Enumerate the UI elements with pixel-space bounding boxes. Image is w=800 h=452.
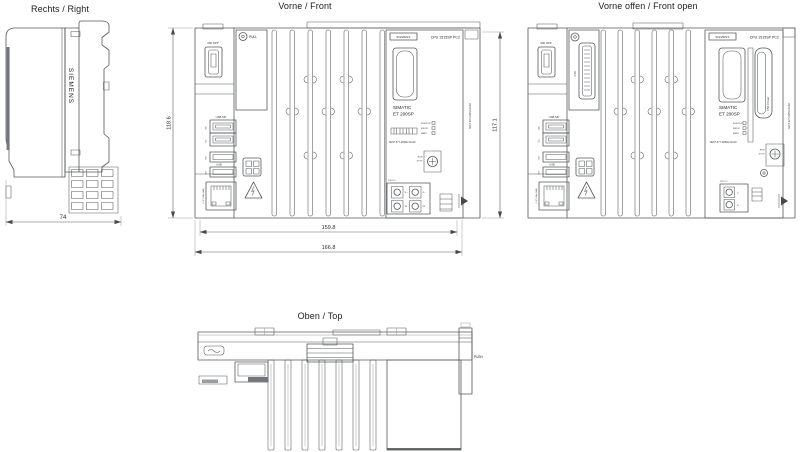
usb-port-x60-label: X60: [539, 125, 541, 129]
dimension-width-inner: 159.8: [200, 220, 457, 236]
center-connector-block: [307, 338, 353, 362]
cpu-type-label: CPU 1515SP PC2: [431, 36, 460, 40]
siemens-logo: SIEMENS: [390, 33, 417, 40]
led-error: ERROR: [421, 128, 428, 130]
dimension-height-right: 117.1: [482, 32, 504, 218]
push-label: PUSH: [474, 355, 484, 359]
open-compartment: X30: [569, 30, 599, 110]
front-plate-edge-shading: [7, 47, 10, 150]
article-number: 6ES7 677-2DB42-0GA0: [710, 141, 737, 144]
terminal-l: L+: [737, 193, 740, 195]
cooling-fins: [601, 30, 695, 216]
usb-port-x63-label: X63: [539, 170, 541, 174]
cpu-section-open: SIEMENS CPU 1515SP PC2 X50 CFast SIMATIC…: [705, 30, 791, 218]
front-view-drawing: X80 DPP PULL USB MP X60 X61 USB X62 X63: [160, 16, 505, 262]
x30-label: X30: [573, 71, 577, 77]
front-open-view-title: Vorne offen / Front open: [498, 1, 798, 11]
led-labels: RUN/STOP ERROR MAINT: [421, 122, 435, 136]
mode-stop-label: STOP: [759, 154, 765, 156]
siemens-logo: SIEMENS: [709, 33, 736, 40]
mode-switch-knob: RUN STOP: [759, 144, 784, 166]
usb-ports: USB MP X60 X61 USB X62 X63: [206, 115, 237, 177]
dimension-height-right-value: 117.1: [493, 118, 499, 131]
open-housing: [528, 23, 795, 218]
displayport-label: X80 DPP: [540, 41, 552, 45]
barcode: [391, 128, 417, 134]
busadapter-clip: [465, 30, 478, 39]
dimension-height-left-value: 118.6: [167, 116, 173, 129]
dimension-depth: 74: [6, 180, 121, 226]
siemens-logo-text: SIEMENS: [396, 35, 410, 39]
left-step-detail: [199, 362, 268, 384]
usb-port-x62-label: X62: [206, 155, 208, 159]
bottom-lug: [6, 186, 11, 198]
cpu-section: SIEMENS CPU 1515SP PC2 SIMATIC ET 200SP …: [386, 30, 478, 218]
dimension-depth-value: 74: [60, 215, 67, 221]
led-error: ERROR: [733, 128, 740, 130]
led-labels: RUN/STOP ERROR MAINT: [733, 122, 746, 136]
displayport-port: X80 DPP: [538, 41, 555, 77]
x30-connector: X30: [573, 43, 595, 99]
release-arrow-icon: [779, 194, 788, 208]
power-label: 24V DC: [388, 180, 396, 182]
usb-ports: USB MP X60 X61 USB X62 X63: [539, 115, 570, 177]
rj45-lan-port: X1 P1 GBit (LAN): [535, 182, 569, 210]
usb-port-x61-label: X61: [206, 138, 208, 142]
product-name-line2: ET 200SP: [393, 112, 414, 117]
led-run-stop: RUN/STOP: [733, 123, 743, 125]
front-open-view-drawing: X80 DPP X30 USB MP X60 X61 USB: [515, 16, 800, 226]
power-terminals: 24V DC 1L+ 1M 2L+ 2M: [387, 180, 430, 214]
busadapter-clip: [783, 28, 795, 37]
usb-port-x60-label: X60: [206, 125, 208, 129]
release-arrow-icon: [459, 194, 468, 208]
membrane-keys-icon: [576, 158, 594, 176]
rj45-lan-port: X1 P1 GBit (LAN): [202, 182, 236, 210]
terminal-m: M: [737, 205, 739, 207]
mode-run-label: RUN: [760, 150, 765, 152]
busadapter-end-block: PUSH: [459, 323, 484, 394]
top-view-drawing: PUSH: [190, 306, 490, 452]
displayport-port: X80 DPP: [205, 41, 222, 77]
led-maint: MAINT: [421, 132, 428, 135]
rail-slot: [333, 330, 380, 335]
power-label: 24V DC: [720, 181, 728, 183]
side-front-plate: SIEMENS: [6, 28, 74, 177]
terminal-1l: 1L+: [405, 192, 408, 194]
siemens-brand-vertical: SIEMENS: [67, 68, 74, 104]
front-view-title: Vorne / Front: [155, 1, 455, 11]
dimension-height-left: 118.6: [167, 28, 194, 218]
dimension-width-inner-value: 159.8: [322, 225, 336, 231]
pull-screw: [571, 33, 579, 41]
aux-connector: [440, 194, 452, 211]
led-run-stop: RUN/STOP: [421, 123, 431, 125]
product-name-line1: SIMATIC: [719, 105, 738, 110]
pull-screw: [239, 33, 247, 41]
side-rail-profile: [6, 21, 109, 198]
cfast-label: X50 CFast: [766, 97, 770, 111]
cpu-type-label: CPU 1515SP PC2: [750, 36, 779, 40]
pull-flap: PULL: [236, 30, 267, 110]
product-name-line1: SIMATIC: [393, 105, 412, 110]
led-maint: MAINT: [733, 132, 740, 135]
cooling-fins: [272, 30, 385, 216]
usb-port-x61-label: X61: [539, 138, 541, 142]
display-door: [393, 48, 417, 100]
dimension-width-outer-value: 166.8: [322, 245, 336, 251]
dimensional-drawing-page: Rechts / Right Vorne / Front Vorne offen…: [0, 0, 800, 452]
membrane-keys-icon: [243, 158, 261, 176]
warning-icon: [245, 182, 262, 198]
mode-stop-label: STOP: [417, 161, 423, 163]
mode-switch-knob: RUN STOP: [417, 151, 441, 172]
top-housing-slab: PUSH: [198, 323, 484, 394]
aux-button: [761, 170, 768, 177]
usb-port-x63-label: X63: [206, 170, 208, 174]
warning-icon: [578, 182, 595, 198]
lan-port-label: X1 P1 GBit (LAN): [202, 188, 205, 204]
mode-run-label: RUN: [418, 157, 423, 159]
lan-port-label: X1 P1 GBit (LAN): [535, 188, 538, 204]
terminal-1m: 1M: [405, 206, 408, 208]
article-number: 6ES7 677-2DB42-0GA0: [389, 141, 416, 144]
terminal-2l: 2L+: [423, 192, 426, 194]
front-housing: [195, 22, 480, 218]
usb-top-label: USB MP: [549, 115, 560, 119]
power-terminals: 24V DC L+ M: [720, 181, 748, 212]
aux-connector: [752, 188, 762, 201]
pull-label: PULL: [249, 35, 257, 39]
usb-top-label: USB MP: [216, 115, 227, 119]
side-printed-code: 6ES7 677-2DB42-0GA0: [788, 103, 791, 129]
right-view-title: Rechts / Right: [0, 4, 120, 14]
usb-bottom-label: USB: [216, 163, 222, 167]
heatsink-fins-top: [268, 360, 376, 450]
side-printed-code: 6ES7 677-2DB42-0GA0: [469, 103, 472, 129]
body-depth-block: [387, 360, 461, 450]
right-view-drawing: SIEMENS 74: [5, 20, 135, 235]
side-terminal-block: [69, 167, 118, 213]
usb-bottom-label: USB: [549, 163, 555, 167]
cfast-slot: X50 CFast: [755, 48, 772, 118]
din-rail-bar: [307, 22, 480, 28]
displayport-label: X80 DPP: [207, 41, 219, 45]
siemens-logo-text: SIEMENS: [715, 35, 729, 39]
vent-detail: [204, 346, 224, 355]
terminal-2m: 2M: [423, 206, 426, 208]
usb-port-x62-label: X62: [539, 155, 541, 159]
product-name-line2: ET 200SP: [719, 112, 740, 117]
